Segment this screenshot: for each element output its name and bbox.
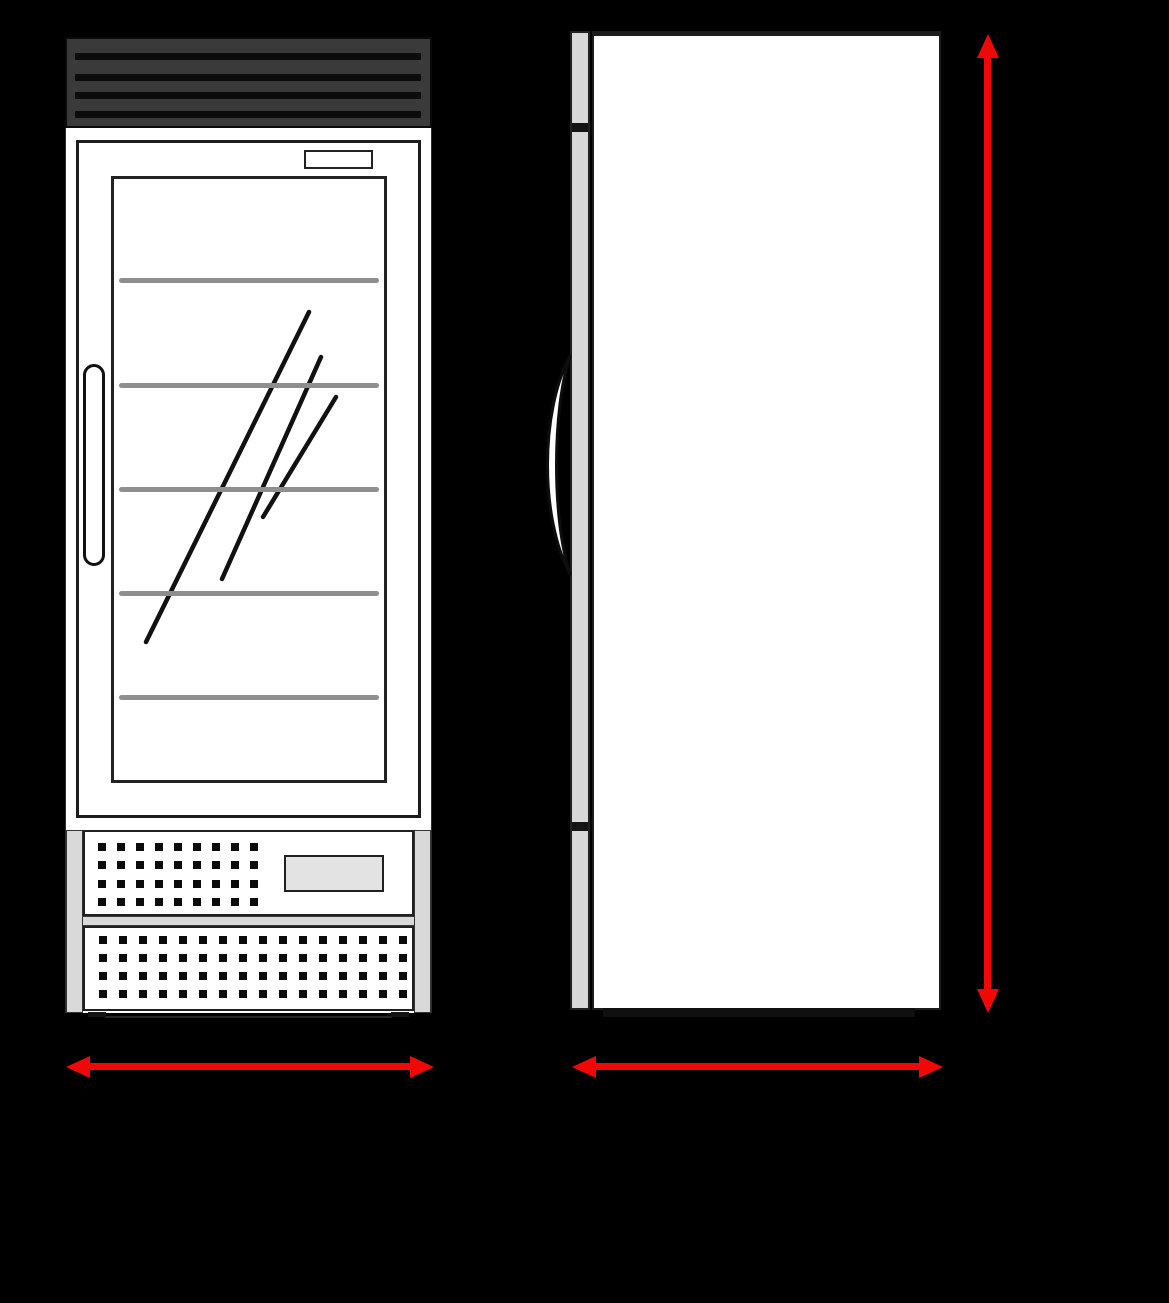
front-control-plate [284,855,384,892]
lower-vent-hole [239,990,247,998]
lower-vent-hole [139,972,147,980]
upper-vent-hole [117,843,125,851]
lower-vent-hole [179,954,187,962]
lower-vent-hole [219,936,227,944]
front-foot-1 [88,1012,106,1017]
lower-vent-hole [119,936,127,944]
lower-vent-hole [339,990,347,998]
lower-vent-hole [139,990,147,998]
lower-vent-hole [339,936,347,944]
louver-slat-2 [75,74,421,81]
front-cabinet-body [65,128,432,1013]
upper-vent-hole [174,861,182,869]
upper-vent-hole [231,898,239,906]
upper-vent-hole [250,880,258,888]
lower-vent-hole [279,954,287,962]
front-foot-2 [391,1012,409,1017]
upper-vent-hole [212,843,220,851]
shelf-line-1 [119,278,379,283]
height-arrow-shaft [984,47,991,1000]
front-width-arrow [66,1056,434,1078]
upper-vent-hole [117,898,125,906]
upper-vent-hole [193,880,201,888]
lower-vent-hole [259,954,267,962]
lower-vent-hole [299,972,307,980]
lower-vent-hole [319,972,327,980]
lower-vent-hole [219,990,227,998]
lower-vent-hole [159,936,167,944]
upper-vent-hole [136,880,144,888]
lower-vent-hole [399,936,407,944]
front-door-handle [83,364,105,566]
upper-vent-hole [231,861,239,869]
lower-vent-hole [259,936,267,944]
front-width-arrow-shaft [79,1063,421,1070]
height-arrow-bottom-arrowhead [977,989,999,1013]
lower-vent-hole [379,954,387,962]
louver-slat-4 [75,111,421,118]
side-hinge-band-2 [572,822,588,831]
upper-vent-hole [155,880,163,888]
lower-vent-hole [339,972,347,980]
lower-vent-hole [339,954,347,962]
front-width-arrow-left-arrowhead [66,1056,90,1078]
lower-vent-hole [199,972,207,980]
upper-vent-hole [212,880,220,888]
side-door-handle [534,350,572,580]
height-arrow-top-arrowhead [977,34,999,58]
lower-vent-hole [219,954,227,962]
shelf-line-5 [119,695,379,700]
glass-glare-lines [114,179,384,780]
lower-vent-hole [279,990,287,998]
upper-vent-hole [98,880,106,888]
lower-vent-hole [379,972,387,980]
lower-vent-hole [219,972,227,980]
lower-vent-hole [279,936,287,944]
upper-vent-hole [212,861,220,869]
lower-vent-hole [299,954,307,962]
front-ground-line [105,1016,392,1018]
side-width-arrow-left-arrowhead [572,1056,596,1078]
lower-vent-hole [119,954,127,962]
refrigerator-dimension-diagram [0,0,1169,1303]
lower-vent-hole [99,954,107,962]
lower-vent-hole [99,936,107,944]
shelf-line-3 [119,487,379,492]
lower-vent-hole [379,936,387,944]
upper-vent-hole [250,861,258,869]
side-door-slab [570,31,590,1010]
side-cabinet-body [592,31,941,1010]
front-base-side-panel-left [66,830,83,1013]
side-base-shadow [603,1008,915,1017]
upper-vent-hole [174,843,182,851]
lower-vent-hole [359,936,367,944]
lower-vent-hole [319,936,327,944]
lower-vent-hole [359,990,367,998]
lower-vent-hole [239,954,247,962]
upper-vent-hole [98,861,106,869]
lower-vent-hole [159,954,167,962]
upper-vent-hole [155,843,163,851]
lower-vent-hole [99,972,107,980]
lower-vent-hole [299,936,307,944]
lower-vent-hole [319,954,327,962]
upper-vent-hole [98,898,106,906]
lower-vent-hole [359,954,367,962]
lower-vent-hole [239,936,247,944]
louver-slat-3 [75,92,421,99]
upper-vent-hole [136,898,144,906]
lower-vent-hole [299,990,307,998]
lower-vent-hole [379,990,387,998]
front-base-side-panel-right [414,830,431,1013]
upper-vent-hole [193,843,201,851]
upper-vent-hole [117,861,125,869]
front-width-arrow-right-arrowhead [410,1056,434,1078]
upper-vent-hole [193,898,201,906]
lower-vent-hole [179,936,187,944]
shelf-line-2 [119,383,379,388]
lower-vent-hole [99,990,107,998]
front-lower-vent-grille [83,926,414,1011]
lower-vent-hole [279,972,287,980]
upper-vent-hole [136,843,144,851]
front-condenser-louver-header [65,37,432,128]
side-hinge-band-1 [572,123,588,132]
lower-vent-hole [239,972,247,980]
lower-vent-hole [159,990,167,998]
side-width-arrow-shaft [585,1063,930,1070]
upper-vent-hole [174,898,182,906]
shelf-line-4 [119,591,379,596]
lower-vent-hole [259,990,267,998]
upper-vent-hole [117,880,125,888]
upper-vent-hole [193,861,201,869]
upper-vent-hole [231,843,239,851]
upper-vent-hole [98,843,106,851]
lower-vent-hole [119,972,127,980]
lower-vent-hole [399,954,407,962]
louver-slat-1 [75,53,421,60]
lower-vent-hole [199,990,207,998]
upper-vent-hole [212,898,220,906]
lower-vent-hole [139,936,147,944]
front-lock-plate [304,150,373,169]
upper-vent-hole [231,880,239,888]
lower-vent-hole [399,990,407,998]
front-base-divider [83,916,414,926]
height-arrow [977,34,999,1013]
lower-vent-hole [179,990,187,998]
lower-vent-hole [179,972,187,980]
lower-vent-hole [359,972,367,980]
lower-vent-hole [119,990,127,998]
upper-vent-hole [136,861,144,869]
upper-vent-hole [250,898,258,906]
lower-vent-hole [319,990,327,998]
upper-vent-hole [155,898,163,906]
lower-vent-hole [159,972,167,980]
upper-vent-hole [250,843,258,851]
front-glass-panel [111,176,387,783]
upper-vent-hole [155,861,163,869]
side-width-arrow [572,1056,943,1078]
upper-vent-hole [174,880,182,888]
lower-vent-hole [139,954,147,962]
lower-vent-hole [399,972,407,980]
lower-vent-hole [259,972,267,980]
lower-vent-hole [199,936,207,944]
lower-vent-hole [199,954,207,962]
side-width-arrow-right-arrowhead [919,1056,943,1078]
